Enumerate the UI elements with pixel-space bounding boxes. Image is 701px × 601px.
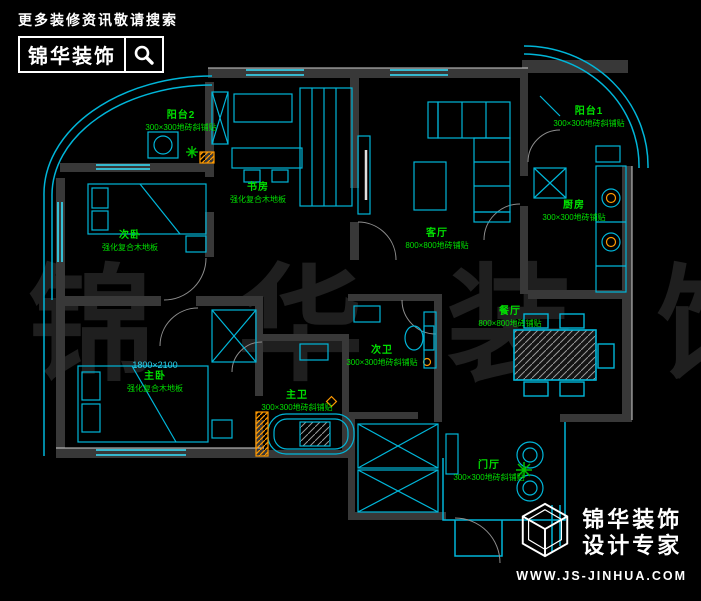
room-label-living: 客厅 800×800地砖铺贴 <box>382 228 492 251</box>
header-tagline: 更多装修资讯敬请搜索 <box>18 10 178 30</box>
footer-logo-row: 锦华装饰 设计专家 <box>516 500 687 565</box>
room-finish-note: 300×300地砖斜铺贴 <box>534 119 644 129</box>
room-label-bedroom2: 次卧 强化复合木地板 <box>75 230 185 253</box>
room-name: 阳台2 <box>126 110 236 123</box>
footer-brand-line2: 设计专家 <box>582 533 682 558</box>
brand-searchbox: 锦华装饰 <box>18 36 164 73</box>
footer-logo-block: 锦华装饰 设计专家 WWW.JS-JINHUA.COM <box>516 500 687 583</box>
header-branding: 更多装修资讯敬请搜索 锦华装饰 <box>18 10 178 73</box>
room-label-balcony2: 阳台2 300×300地砖斜铺贴 <box>126 110 236 133</box>
room-label-study: 书房 强化复合木地板 <box>203 182 313 205</box>
room-finish-note: 300×300地砖斜铺贴 <box>434 473 544 483</box>
footer-website: WWW.JS-JINHUA.COM <box>516 569 687 583</box>
footer-brand-text: 锦华装饰 设计专家 <box>582 507 682 558</box>
bed-size-label: 1800×2100 <box>100 360 210 371</box>
room-finish-note: 强化复合木地板 <box>100 384 210 394</box>
balcony2-items <box>148 132 214 163</box>
room-label-bathroom2: 次卫 300×300地砖斜铺贴 <box>327 345 437 368</box>
room-name: 阳台1 <box>534 106 644 119</box>
room-name: 客厅 <box>382 228 492 241</box>
room-label-dining: 餐厅 800×800地砖铺贴 <box>455 306 565 329</box>
room-finish-note: 800×800地砖铺贴 <box>455 319 565 329</box>
brand-name: 锦华装饰 <box>20 38 124 71</box>
wardrobe-master <box>212 310 256 362</box>
cube-logo-icon <box>516 500 574 565</box>
room-name: 门厅 <box>434 460 544 473</box>
room-name: 书房 <box>203 182 313 195</box>
room-name: 主卫 <box>242 390 352 403</box>
room-label-entry: 门厅 300×300地砖斜铺贴 <box>434 460 544 483</box>
room-name: 次卫 <box>327 345 437 358</box>
room-name: 次卧 <box>75 230 185 243</box>
room-finish-note: 300×300地砖铺贴 <box>519 213 629 223</box>
floorplan-screenshot: 锦 华 装 饰 <box>0 0 701 601</box>
room-label-kitchen: 厨房 300×300地砖铺贴 <box>519 200 629 223</box>
room-label-balcony1: 阳台1 300×300地砖斜铺贴 <box>534 106 644 129</box>
room-name: 主卧 <box>100 371 210 384</box>
balcony2-plant-icon <box>186 146 198 158</box>
room-finish-note: 800×800地砖铺贴 <box>382 241 492 251</box>
room-label-bathroom1: 主卫 300×300地砖斜铺贴 <box>242 390 352 413</box>
kitchen-counter <box>534 166 626 292</box>
room-name: 餐厅 <box>455 306 565 319</box>
room-finish-note: 300×300地砖斜铺贴 <box>126 123 236 133</box>
room-finish-note: 300×300地砖斜铺贴 <box>242 403 352 413</box>
room-finish-note: 300×300地砖斜铺贴 <box>327 358 437 368</box>
room-name: 厨房 <box>519 200 629 213</box>
footer-brand-line1: 锦华装饰 <box>582 507 682 532</box>
room-finish-note: 强化复合木地板 <box>75 243 185 253</box>
room-label-master-bedroom: 1800×2100 主卧 强化复合木地板 <box>100 360 210 394</box>
room-finish-note: 强化复合木地板 <box>203 195 313 205</box>
living-furniture <box>358 102 510 222</box>
search-icon <box>124 38 162 71</box>
